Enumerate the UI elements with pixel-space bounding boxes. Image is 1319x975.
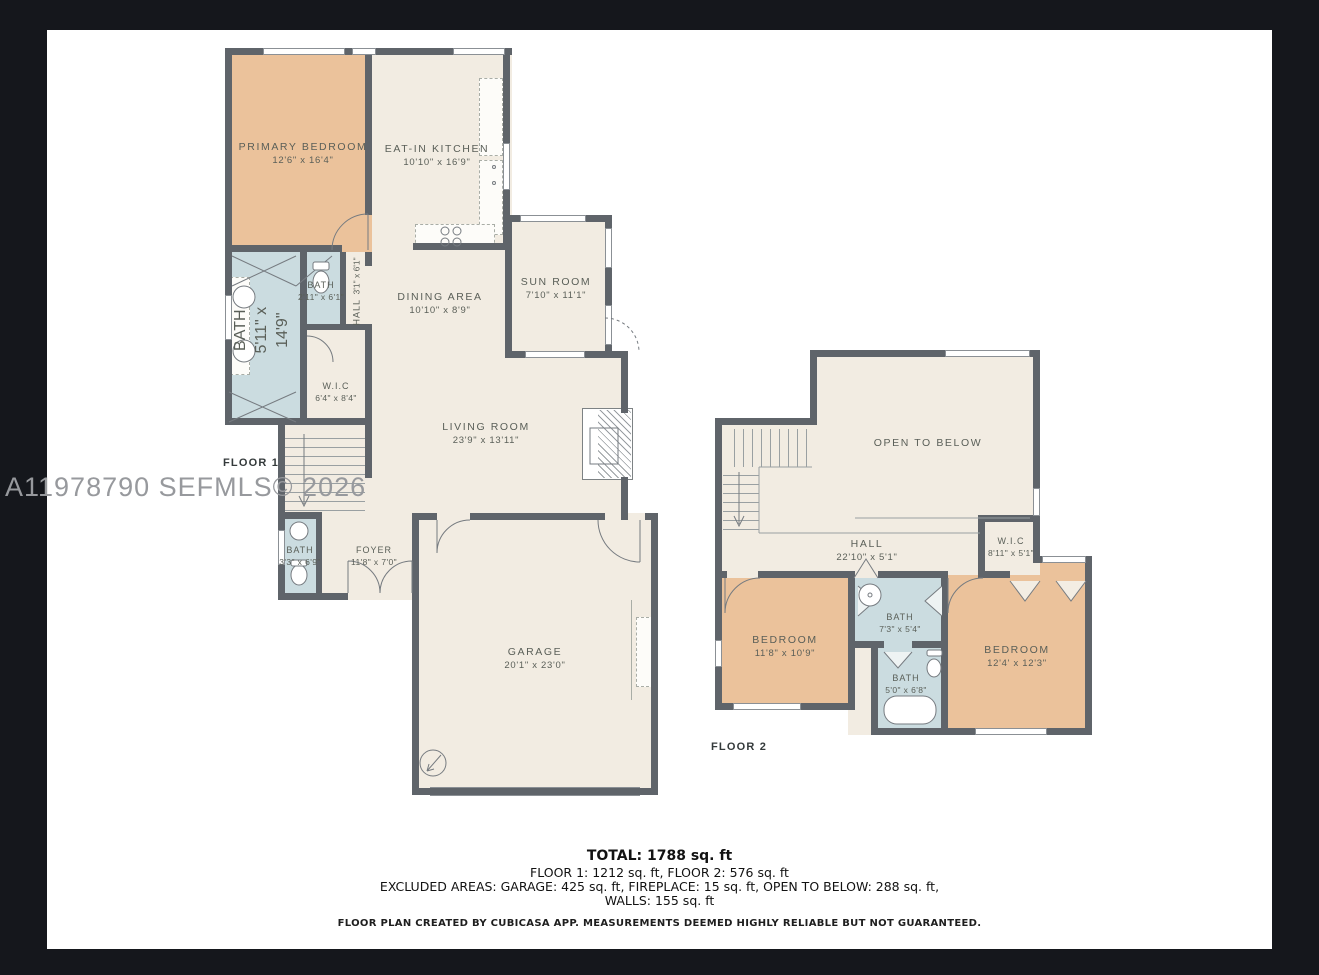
window — [503, 143, 510, 190]
window — [975, 728, 1047, 735]
wall — [980, 571, 1010, 578]
label-open-to-below: OPEN TO BELOW — [848, 437, 1008, 451]
wall — [621, 477, 628, 520]
label-bath-foyer: BATH 3'3" x 6'9" — [270, 545, 330, 568]
summary-total: TOTAL: 1788 sq. ft — [47, 848, 1272, 864]
summary-floors: FLOOR 1: 1212 sq. ft, FLOOR 2: 576 sq. f… — [47, 865, 1272, 880]
window — [1033, 488, 1040, 516]
label-garage: GARAGE 20'1" x 23'0" — [475, 646, 595, 672]
room-wic-f1 — [300, 330, 372, 425]
wall — [225, 245, 342, 252]
wall — [225, 418, 372, 425]
label-sun-room: SUN ROOM 7'10" x 11'1" — [496, 276, 616, 302]
wall — [978, 515, 1040, 522]
wall — [470, 513, 605, 520]
summary-walls: WALLS: 155 sq. ft — [47, 893, 1272, 908]
wall — [912, 641, 948, 648]
summary-disclaimer: FLOOR PLAN CREATED BY CUBICASA APP. MEAS… — [47, 918, 1272, 929]
wall — [848, 641, 884, 648]
label-dining-area: DINING AREA 10'10" x 8'9" — [380, 291, 500, 317]
label-eat-in-kitchen: EAT-IN KITCHEN 10'10" x 16'9" — [377, 143, 497, 169]
label-wic-f2: W.I.C 8'11" x 5'1" — [971, 536, 1051, 559]
wall — [621, 351, 628, 413]
wall — [365, 48, 372, 215]
window — [453, 48, 505, 55]
label-bedroom-left: BEDROOM 11'8" x 10'9" — [725, 634, 845, 660]
garage-shelf-line — [631, 600, 632, 700]
wall — [278, 418, 285, 600]
stairs-floor2-left — [723, 467, 759, 533]
wall — [412, 788, 658, 795]
window — [525, 351, 585, 358]
wall — [715, 571, 727, 578]
window — [605, 305, 612, 345]
fireplace-hatch — [598, 410, 631, 478]
wall — [365, 330, 372, 425]
wall — [1085, 556, 1092, 735]
window — [352, 48, 376, 55]
window — [715, 640, 722, 667]
label-foyer: FOYER 11'8" x 7'0" — [334, 545, 414, 568]
wall — [715, 418, 817, 425]
summary-excluded: EXCLUDED AREAS: GARAGE: 425 sq. ft, FIRE… — [47, 879, 1272, 894]
floor1-label: FLOOR 1 — [223, 457, 279, 469]
wall — [651, 513, 658, 795]
window — [945, 350, 1030, 357]
wall — [941, 571, 948, 735]
label-bedroom-right: BEDROOM 12'4' x 12'3" — [957, 644, 1077, 670]
label-wic-f1: W.I.C 6'4" x 8'4" — [296, 381, 376, 404]
label-bath-large: BATH 5'11" x 14'9" — [222, 290, 302, 370]
window — [520, 215, 586, 222]
stairs-floor2-top — [726, 429, 812, 467]
label-hall-f2: HALL 22'10" x 5'1" — [807, 538, 927, 564]
mls-watermark: A11978790 SEFMLS© 2026 — [5, 472, 366, 503]
wall — [278, 593, 348, 600]
window — [733, 703, 801, 710]
wall — [810, 350, 817, 425]
wall — [413, 243, 510, 250]
window — [263, 48, 345, 55]
wall — [365, 418, 372, 478]
label-bath-bottom-f2: BATH 5'0" x 6'8" — [876, 673, 936, 696]
floor2-label: FLOOR 2 — [711, 741, 767, 753]
wall — [758, 571, 855, 578]
label-living-room: LIVING ROOM 23'9" x 13'11" — [416, 421, 556, 447]
wall — [878, 571, 948, 578]
label-primary-bedroom: PRIMARY BEDROOM 12'6" x 16'4" — [233, 141, 373, 167]
window — [605, 228, 612, 268]
label-bath-top-f2: BATH 7'3" x 5'4" — [870, 612, 930, 635]
floor-plan-page: { "palette":{"bg":"#15171c","sheet":"#ff… — [0, 0, 1319, 975]
wall — [871, 728, 948, 735]
